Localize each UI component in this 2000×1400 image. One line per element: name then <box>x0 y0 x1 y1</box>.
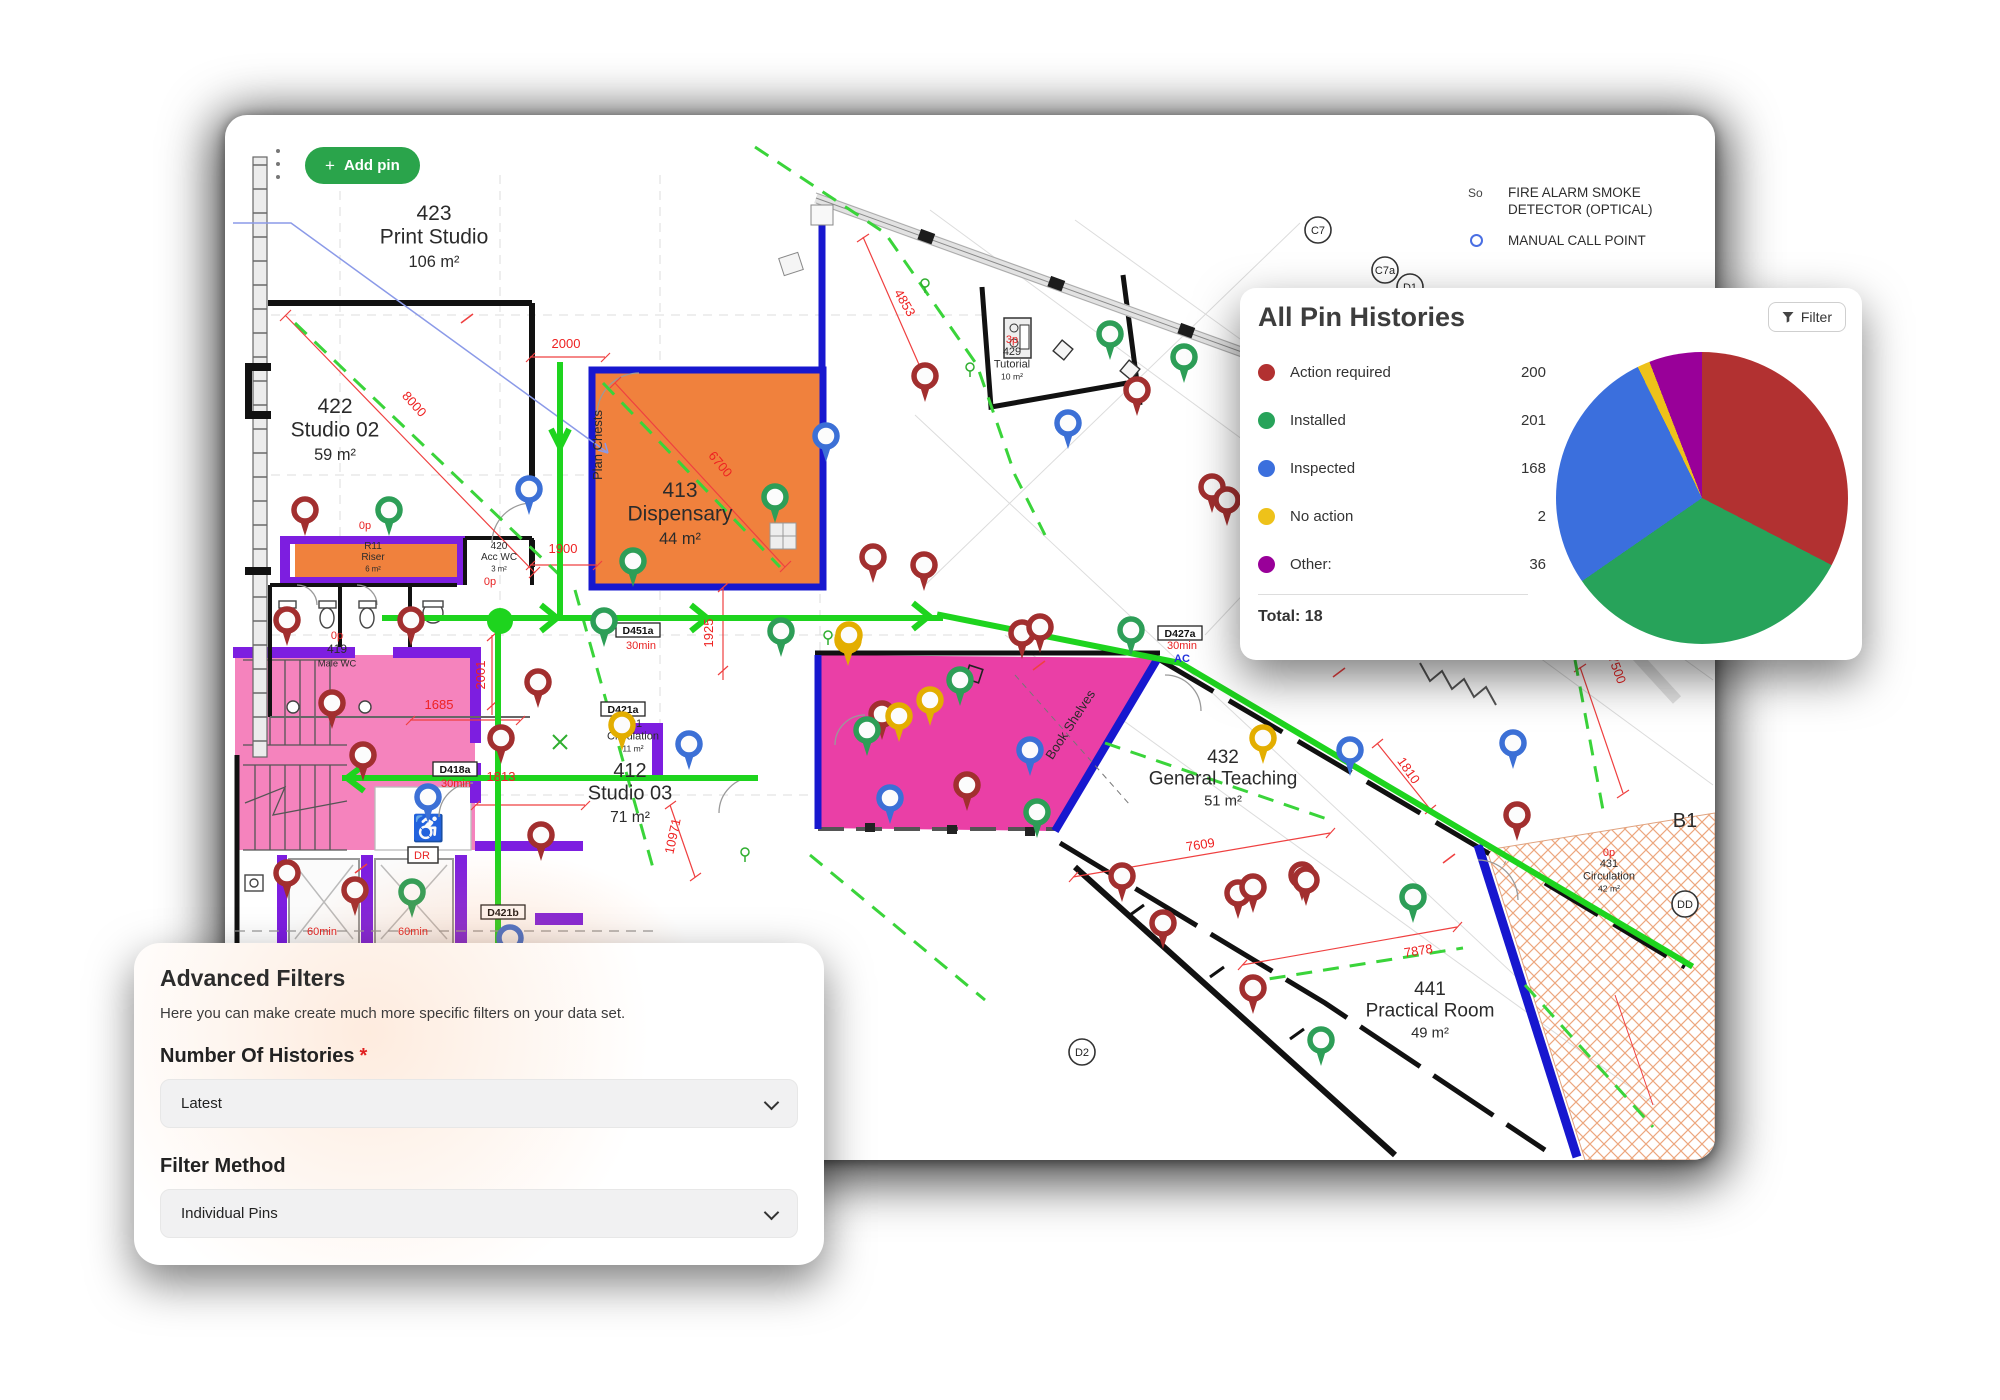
chevron-down-icon <box>764 1205 780 1221</box>
status-dot <box>1258 412 1275 429</box>
exterior-wall-left <box>253 157 267 757</box>
status-row-2: Inspected 168 <box>1258 444 1546 492</box>
map-pin-r[interactable] <box>1506 804 1528 841</box>
map-pin-r[interactable] <box>294 499 316 536</box>
map-pin-r[interactable] <box>490 727 512 764</box>
app-root: { "header": { "add_pin_label": "Add pin"… <box>0 0 2000 1400</box>
required-asterisk: * <box>359 1045 367 1067</box>
grid-marker-label: C7a <box>1375 265 1396 277</box>
grid-marker-label: DD <box>1677 899 1693 911</box>
map-pin-b[interactable] <box>1502 732 1524 769</box>
map-pin-r[interactable] <box>1111 865 1133 902</box>
map-pin-r[interactable] <box>530 824 552 861</box>
map-pin-g[interactable] <box>1402 886 1424 923</box>
panel-title: All Pin Histories <box>1258 302 1465 333</box>
map-pin-b[interactable] <box>1057 412 1079 449</box>
room-label: 422Studio 0259 m² <box>291 395 380 464</box>
filter-method-label: Filter Method <box>160 1155 286 1178</box>
funnel-icon <box>1782 311 1794 323</box>
pin-histories-panel: All Pin Histories Filter Action required… <box>1240 288 1862 660</box>
map-pin-r[interactable] <box>1242 977 1264 1014</box>
status-value: 201 <box>1496 412 1546 429</box>
smoke-detector-icon: So <box>1468 185 1508 219</box>
status-label: Other: <box>1290 556 1496 573</box>
annotation-red: 30min <box>626 640 656 652</box>
annotation-red: 60min <box>307 926 337 938</box>
filters-title: Advanced Filters <box>160 965 345 992</box>
annotation-red: 3p <box>1006 334 1018 346</box>
call-point-label: MANUAL CALL POINT <box>1508 233 1646 250</box>
dimension-label: 1900 <box>549 541 578 556</box>
zigzag-symbol <box>1420 663 1496 705</box>
door-label: D421b <box>487 907 519 919</box>
dimension-label: 4853 <box>891 286 918 319</box>
status-label: No action <box>1290 508 1496 525</box>
map-pin-g[interactable] <box>770 620 792 657</box>
annotation-red: 30min <box>1167 640 1197 652</box>
status-value: 200 <box>1496 364 1546 381</box>
status-dot <box>1258 508 1275 525</box>
dimension-label: 1813 <box>487 769 516 784</box>
filter-button-label: Filter <box>1801 309 1832 325</box>
status-value: 168 <box>1496 460 1546 477</box>
room-label: B1 <box>1673 810 1697 832</box>
status-value: 2 <box>1496 508 1546 525</box>
dimension-label: 2000 <box>552 336 581 351</box>
map-pin-g[interactable] <box>593 610 615 647</box>
dimension-label: 1685 <box>425 697 454 712</box>
status-label: Inspected <box>1290 460 1496 477</box>
map-pin-r[interactable] <box>862 546 884 583</box>
map-pin-g[interactable] <box>378 499 400 536</box>
map-pin-r[interactable] <box>1152 912 1174 949</box>
map-pin-b[interactable] <box>678 733 700 770</box>
dimension-label: 2001 <box>473 661 488 690</box>
annotation-red: 60min <box>398 926 428 938</box>
room-label: 441Practical Room49 m² <box>1366 979 1495 1042</box>
annotation-red: 0p <box>359 520 371 532</box>
pin-status-pie-chart <box>1556 352 1848 644</box>
annotation-red: DR <box>414 850 430 862</box>
map-pin-r[interactable] <box>400 609 422 646</box>
status-value: 36 <box>1496 556 1546 573</box>
room-label: 423Print Studio106 m² <box>380 202 489 271</box>
room-label: 432General Teaching51 m² <box>1149 747 1298 810</box>
dimension-label: 7878 <box>1403 941 1434 960</box>
legend-row-smoke: So FIRE ALARM SMOKE DETECTOR (OPTICAL) <box>1468 185 1693 219</box>
map-pin-r[interactable] <box>276 609 298 646</box>
map-pin-g[interactable] <box>1173 346 1195 383</box>
annotation-blue: AC <box>1174 653 1190 665</box>
filter-button[interactable]: Filter <box>1768 302 1846 332</box>
door-label: D418a <box>440 764 471 776</box>
call-point-icon <box>1470 234 1483 247</box>
chevron-down-icon <box>764 1095 780 1111</box>
map-pin-g[interactable] <box>1310 1029 1332 1066</box>
map-pin-g[interactable] <box>1099 323 1121 360</box>
column-cap <box>811 205 833 225</box>
status-row-4: Other: 36 <box>1258 540 1546 588</box>
status-label: Installed <box>1290 412 1496 429</box>
dimension-label: 7609 <box>1185 835 1216 854</box>
smoke-detector-label: FIRE ALARM SMOKE DETECTOR (OPTICAL) <box>1508 185 1693 219</box>
advanced-filters-panel: Advanced Filters Here you can make creat… <box>134 943 824 1265</box>
status-dot <box>1258 556 1275 573</box>
annotation-red: 0p <box>484 576 496 588</box>
status-label: Action required <box>1290 364 1496 381</box>
status-row-1: Installed 201 <box>1258 396 1546 444</box>
door-label: D451a <box>623 625 654 637</box>
add-pin-label: Add pin <box>344 157 400 174</box>
map-pin-r[interactable] <box>527 671 549 708</box>
legend-row-callpoint: MANUAL CALL POINT <box>1468 233 1693 250</box>
status-legend: Action required 200 Installed 201 Inspec… <box>1258 348 1546 588</box>
map-pin-r[interactable] <box>914 365 936 402</box>
map-pin-r[interactable] <box>1029 616 1051 653</box>
status-row-3: No action 2 <box>1258 492 1546 540</box>
door-label: D427a <box>1165 628 1196 640</box>
map-pin-r[interactable] <box>1126 379 1148 416</box>
histories-field-label: Number Of Histories* <box>160 1045 367 1068</box>
number-of-histories-select[interactable]: Latest <box>160 1079 798 1128</box>
map-pin-r[interactable] <box>1242 876 1264 913</box>
map-pin-b[interactable] <box>518 478 540 515</box>
map-pin-y[interactable] <box>1252 727 1274 764</box>
status-row-0: Action required 200 <box>1258 348 1546 396</box>
plus-icon: + <box>325 156 335 176</box>
map-pin-r[interactable] <box>1295 869 1317 906</box>
status-dot <box>1258 364 1275 381</box>
map-pin-r[interactable] <box>913 554 935 591</box>
map-pin-r[interactable] <box>1216 489 1238 526</box>
dimension-label: 8000 <box>399 388 429 420</box>
room-label: Plan Chests <box>590 409 605 480</box>
annotation-red: 0p <box>331 630 343 642</box>
add-pin-button[interactable]: + Add pin <box>305 147 420 184</box>
filter-method-value: Individual Pins <box>181 1205 278 1222</box>
room-label: 420Acc WC3 m² <box>481 541 517 573</box>
status-dot <box>1258 460 1275 477</box>
plan-symbol-legend: So FIRE ALARM SMOKE DETECTOR (OPTICAL) M… <box>1468 185 1693 264</box>
dimension-label: 1925 <box>701 619 716 648</box>
route-node <box>487 608 513 634</box>
grid-marker-label: C7 <box>1311 225 1325 237</box>
total-count: Total: 18 <box>1258 608 1323 626</box>
kebab-menu-icon[interactable] <box>269 149 287 179</box>
annotation-red: 30min <box>441 778 471 790</box>
filter-method-select[interactable]: Individual Pins <box>160 1189 798 1238</box>
divider <box>1258 594 1528 595</box>
grid-marker-label: D2 <box>1075 1047 1089 1059</box>
histories-select-value: Latest <box>181 1095 222 1112</box>
filters-description: Here you can make create much more speci… <box>160 1005 625 1022</box>
